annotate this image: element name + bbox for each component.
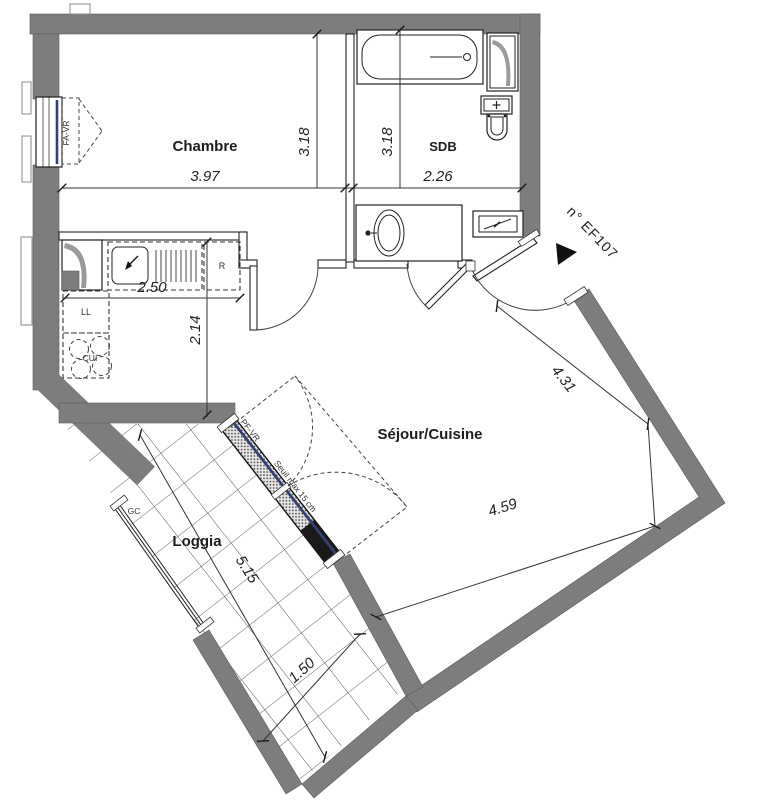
floor-plan-page: 3.97 2.26 3.18 3.18 2.50 2.14 4.31 4.59 … xyxy=(0,0,774,800)
technical-duct xyxy=(473,211,523,237)
wc-hinge-icon xyxy=(488,115,491,118)
shower-panel xyxy=(487,33,518,91)
bathtub xyxy=(357,30,483,84)
dim-witness-line xyxy=(648,424,655,526)
label-cooker: CUI xyxy=(83,353,98,363)
worktop-corner-block xyxy=(62,271,79,290)
room-label-bedroom: Chambre xyxy=(172,138,237,155)
drainboard-hatch-icon xyxy=(156,250,196,282)
bedroom-door-arc xyxy=(254,266,318,330)
entrance-marker-icon xyxy=(556,243,577,265)
label-washing-machine: LL xyxy=(81,307,91,317)
window-swing-line xyxy=(79,99,102,131)
facade-slab xyxy=(21,237,32,325)
facade-slab xyxy=(70,4,90,14)
dim-kitchen-width: 2.50 xyxy=(136,279,167,296)
entrance-door-arc xyxy=(472,270,575,310)
room-label-living: Séjour/Cuisine xyxy=(377,426,482,443)
wall-left-upper xyxy=(33,34,59,99)
wc-bowl xyxy=(487,114,507,140)
window-leaf-swing xyxy=(336,507,407,562)
washbasin-faucet-icon xyxy=(365,230,370,235)
wc-hinge-icon xyxy=(504,115,507,118)
bedroom-door-leaf xyxy=(250,266,257,330)
window-swing-line xyxy=(79,131,102,163)
facade-slab xyxy=(22,136,31,182)
partition-door-stub-right xyxy=(318,260,346,268)
room-label-bathroom: SDB xyxy=(429,139,456,154)
label-gc: GC xyxy=(128,506,141,516)
dim-bedroom-depth: 3.18 xyxy=(296,127,313,157)
bathroom-door-arc xyxy=(407,264,427,307)
loggia-tile-grid xyxy=(64,424,403,781)
floor-plan-svg: 3.97 2.26 3.18 3.18 2.50 2.14 4.31 4.59 … xyxy=(0,0,774,800)
facade-slab xyxy=(22,82,31,114)
dim-living-right: 4.31 xyxy=(548,362,579,395)
label-fridge: R xyxy=(219,261,226,271)
bathroom-door-leaf xyxy=(425,262,472,309)
room-label-loggia: Loggia xyxy=(172,533,222,550)
wall-sejour-right-bottom xyxy=(406,289,725,712)
dim-bathroom-depth: 3.18 xyxy=(379,127,396,157)
partition-chambre-sdb xyxy=(346,34,354,262)
door-hinge-jamb xyxy=(466,261,475,271)
dim-bathroom-width: 2.26 xyxy=(422,168,453,185)
window-leaf-swing xyxy=(230,376,295,427)
partition-chambre-kitchen xyxy=(59,232,247,240)
entrance-door-leaf xyxy=(473,238,537,281)
wall-left-lower xyxy=(33,165,59,390)
dim-bedroom-width: 3.97 xyxy=(190,168,220,185)
dim-kitchen-depth: 2.14 xyxy=(187,315,204,345)
loggia-floor xyxy=(64,424,403,781)
wall-right-sdb xyxy=(520,14,540,236)
dim-living-bottom: 4.59 xyxy=(486,495,520,520)
sink-arrow-icon xyxy=(129,256,138,265)
label-bedroom-window: FA-VR xyxy=(61,120,71,145)
